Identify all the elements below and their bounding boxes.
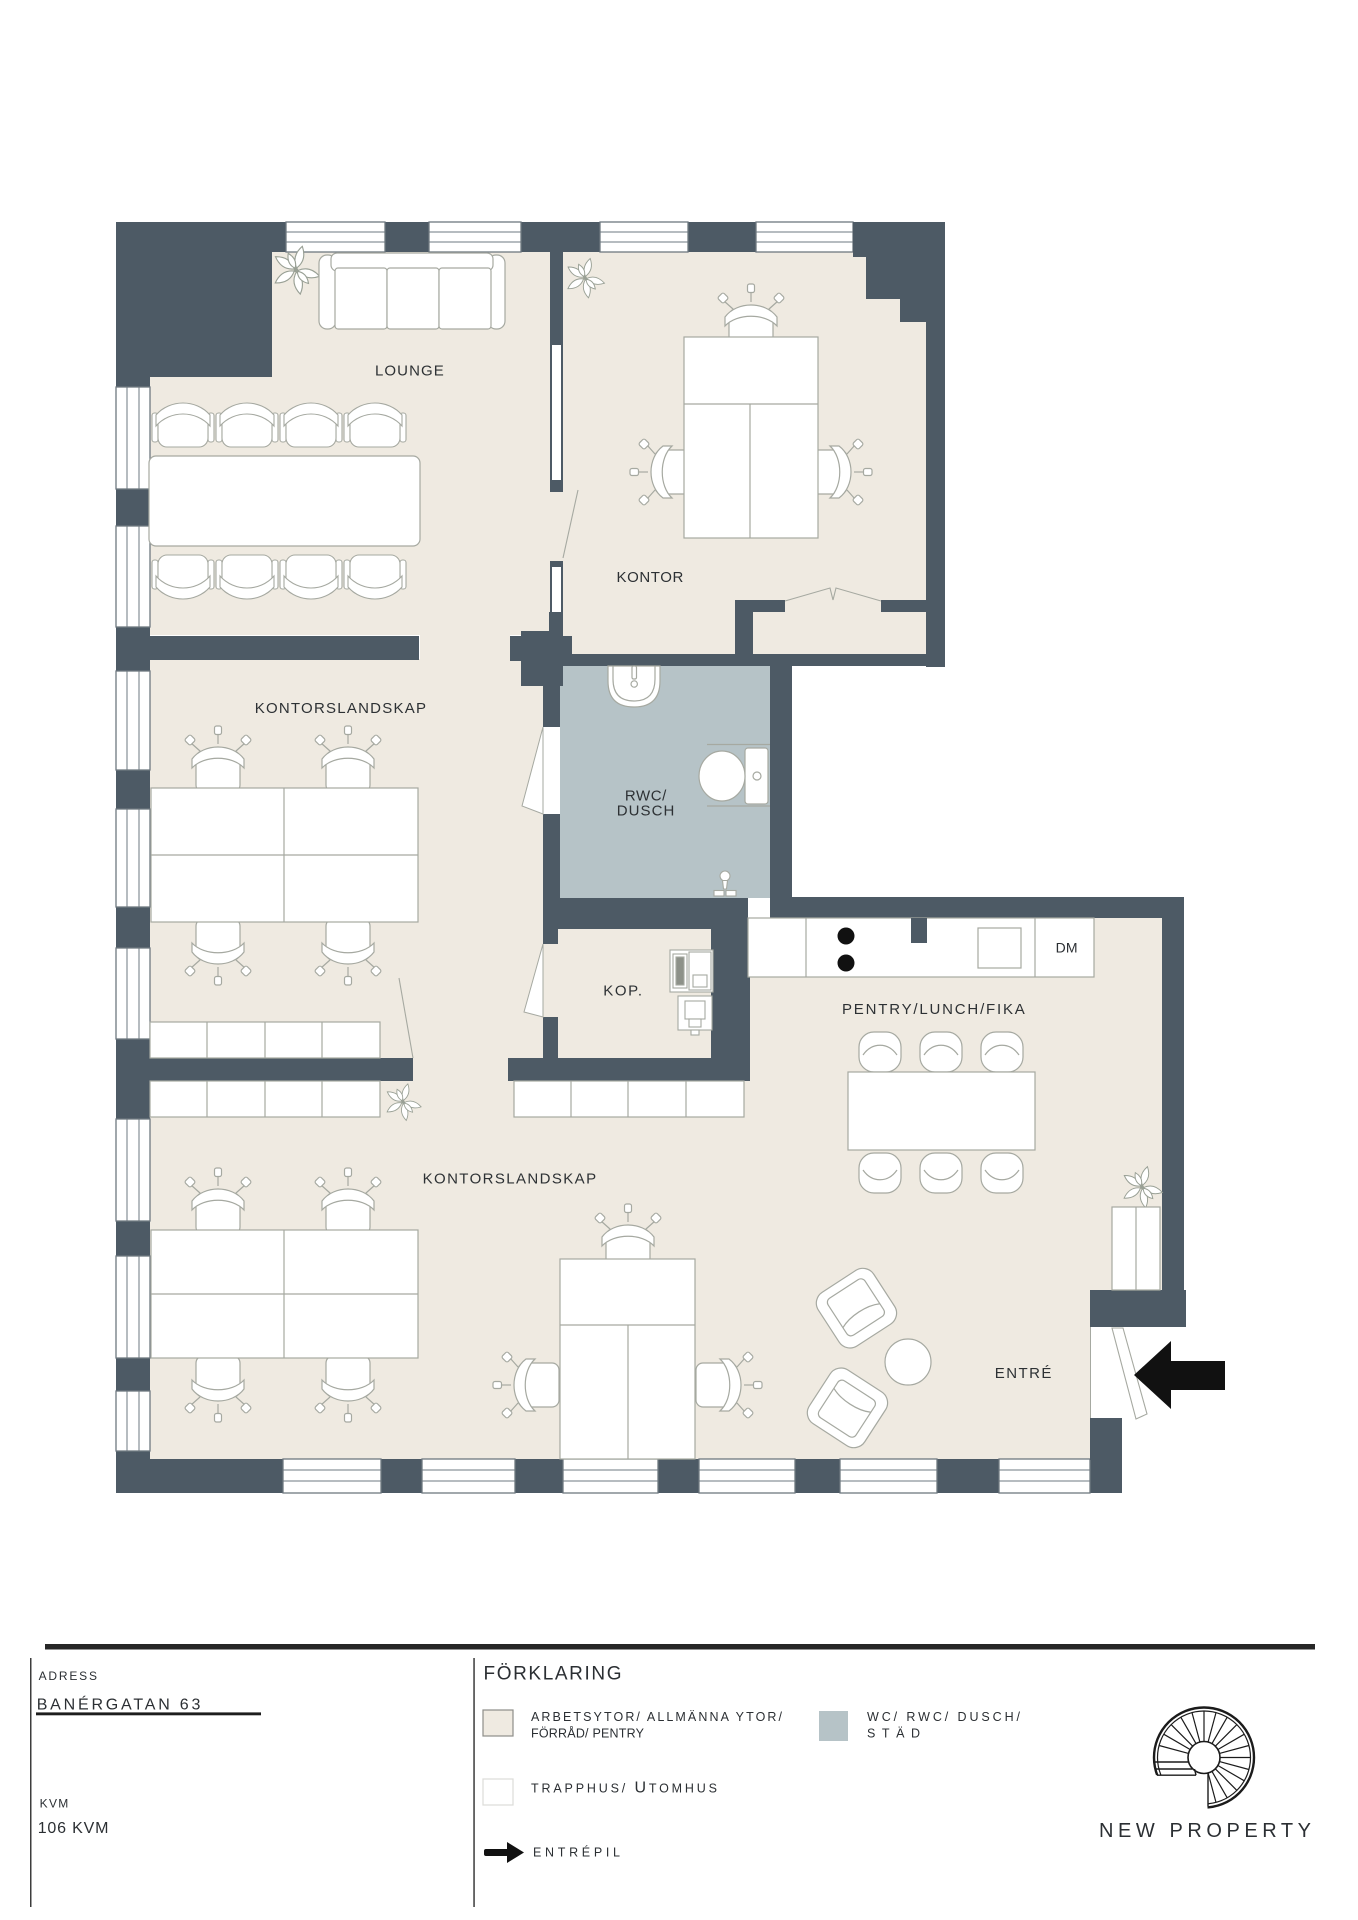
svg-text:WC/ RWC/ DUSCH/: WC/ RWC/ DUSCH/ — [867, 1710, 1021, 1724]
svg-text:KOP.: KOP. — [603, 983, 645, 1000]
svg-text:ADRESS: ADRESS — [39, 1669, 97, 1683]
svg-text:PENTRY/LUNCH/FIKA: PENTRY/LUNCH/FIKA — [842, 1001, 1028, 1018]
svg-text:KONTORSLANDSKAP: KONTORSLANDSKAP — [255, 700, 430, 717]
svg-text:NEW PROPERTY: NEW PROPERTY — [1099, 1820, 1311, 1842]
svg-text:FÖRKLARING: FÖRKLARING — [484, 1664, 622, 1685]
svg-text:BANÉRGATAN 63: BANÉRGATAN 63 — [37, 1695, 201, 1714]
svg-text:KONTORSLANDSKAP: KONTORSLANDSKAP — [423, 1171, 600, 1188]
svg-text:KVM: KVM — [40, 1797, 69, 1811]
svg-text:FÖRRÅD/ PENTRY: FÖRRÅD/ PENTRY — [531, 1726, 645, 1741]
svg-text:ENTRÉ: ENTRÉ — [995, 1365, 1055, 1382]
svg-text:LOUNGE: LOUNGE — [375, 363, 447, 380]
svg-text:DM: DM — [1056, 940, 1078, 956]
svg-text:ARBETSYTOR/ ALLMÄNNA YTOR/: ARBETSYTOR/ ALLMÄNNA YTOR/ — [531, 1710, 783, 1724]
svg-text:DUSCH: DUSCH — [617, 803, 678, 820]
svg-text:ENTRÉPIL: ENTRÉPIL — [533, 1845, 620, 1860]
svg-text:TRAPPHUS/ UTOMHUS: TRAPPHUS/ UTOMHUS — [531, 1780, 717, 1797]
svg-text:STÄD: STÄD — [867, 1727, 920, 1741]
svg-text:KONTOR: KONTOR — [617, 569, 687, 586]
svg-text:106 KVM: 106 KVM — [38, 1820, 109, 1837]
